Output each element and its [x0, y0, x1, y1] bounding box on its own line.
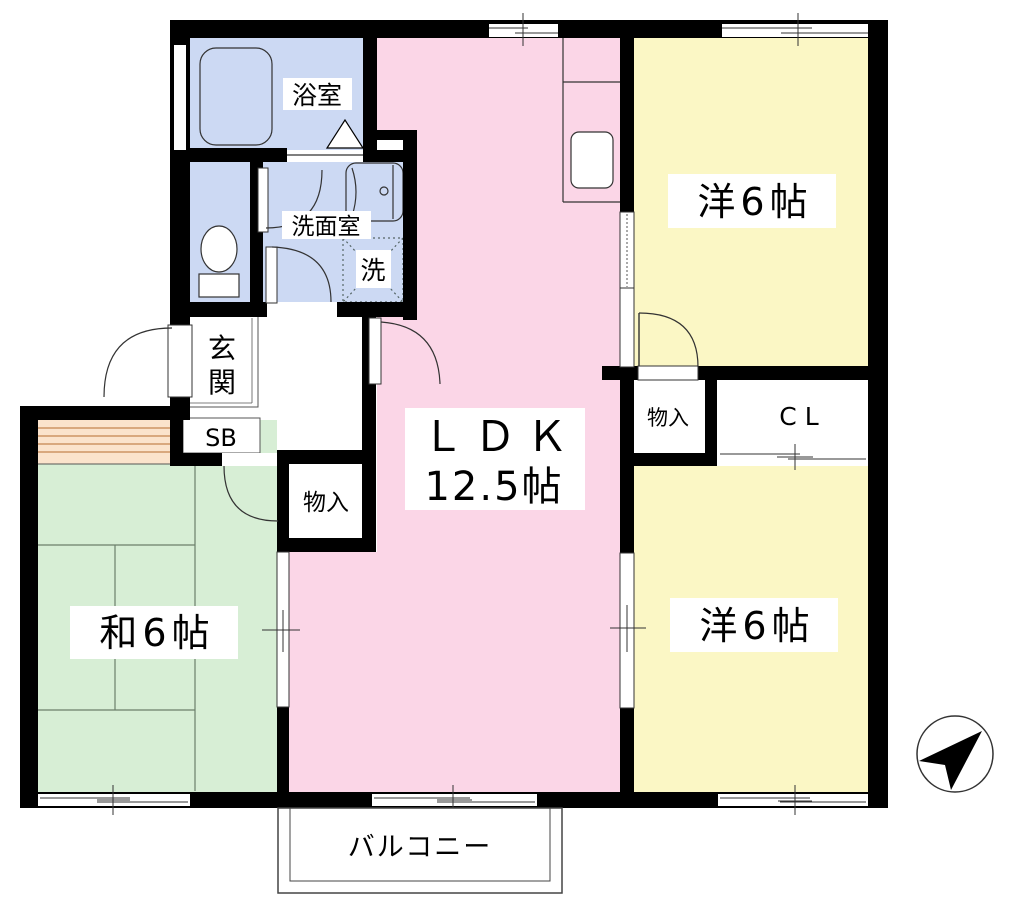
- front-door: [104, 325, 192, 397]
- western-bottom-label: 洋6帖: [699, 604, 814, 648]
- japanese-closet-floor: [38, 420, 170, 464]
- entrance-label-char2: 関: [208, 366, 236, 399]
- closet-label: CL: [779, 402, 826, 431]
- north-arrow-icon: [917, 716, 993, 792]
- entrance-label-char1: 玄: [208, 332, 236, 365]
- kitchen-sink: [571, 132, 613, 188]
- right-storage-label: 物入: [647, 406, 689, 430]
- washroom-label: 洗面室: [292, 214, 361, 240]
- ldk-label: ＬＤＫ: [422, 412, 578, 461]
- floorplan-page: 浴室 洗面室 洗 玄 関 SB 物入 ＬＤＫ 12.5帖 洋6帖 物入 CL 洋…: [0, 0, 1024, 907]
- japanese-label: 和6帖: [99, 611, 214, 655]
- hall-storage-label: 物入: [303, 490, 349, 516]
- toilet: [199, 226, 239, 297]
- floorplan-drawing: 浴室 洗面室 洗 玄 関 SB 物入 ＬＤＫ 12.5帖 洋6帖 物入 CL 洋…: [0, 0, 1024, 907]
- ldk-size-label: 12.5帖: [424, 464, 563, 510]
- western-top-slider: [620, 212, 634, 367]
- shoe-box-label: SB: [205, 424, 237, 452]
- bath-window: [174, 45, 186, 150]
- bath-label: 浴室: [292, 81, 342, 110]
- laundry-label: 洗: [360, 256, 385, 285]
- balcony-label: バルコニー: [348, 832, 492, 863]
- western-top-label: 洋6帖: [697, 180, 812, 224]
